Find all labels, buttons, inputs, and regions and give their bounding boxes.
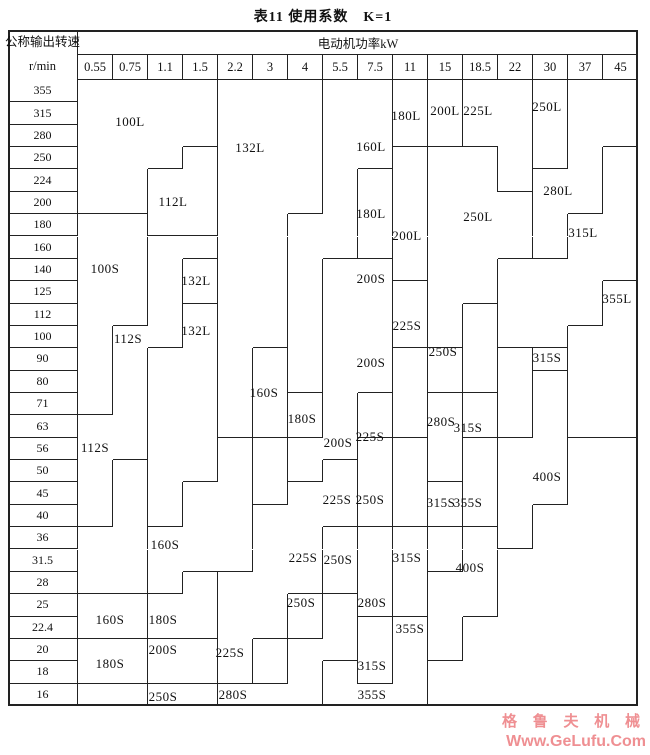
- speed-cell: 50: [8, 460, 78, 482]
- body-cell: [253, 214, 288, 236]
- body-cell: [463, 348, 498, 370]
- body-cell: [218, 527, 253, 549]
- body-cell: [533, 125, 568, 147]
- body-cell: [533, 438, 568, 460]
- body-cell: [393, 80, 428, 102]
- body-cell: [253, 594, 288, 616]
- body-cell: [393, 639, 428, 661]
- speed-cell: 80: [8, 371, 78, 393]
- body-cell: [498, 192, 533, 214]
- region-label: 315S: [533, 350, 562, 366]
- body-cell: [358, 617, 393, 639]
- body-cell: [393, 594, 428, 616]
- body-cell: [393, 169, 428, 191]
- power-cell: 45: [603, 55, 638, 80]
- body-cell: [323, 505, 358, 527]
- body-cell: [253, 438, 288, 460]
- speed-cell: 180: [8, 214, 78, 236]
- body-cell: [498, 80, 533, 102]
- body-cell: [463, 326, 498, 348]
- body-cell: [428, 393, 463, 415]
- region-label: 250S: [287, 595, 316, 611]
- body-cell: [183, 147, 218, 169]
- body-cell: [183, 438, 218, 460]
- body-cell: [358, 572, 393, 594]
- body-cell: [183, 661, 218, 683]
- power-cell: 15: [428, 55, 463, 80]
- body-cell: [603, 259, 638, 281]
- body-cell: [148, 281, 183, 303]
- body-cell: [428, 460, 463, 482]
- power-header: 电动机功率kW: [78, 30, 638, 55]
- body-cell: [393, 415, 428, 437]
- speed-cell: 100: [8, 326, 78, 348]
- body-cell: [183, 125, 218, 147]
- body-cell: [393, 661, 428, 683]
- body-cell: [253, 259, 288, 281]
- body-cell: [183, 617, 218, 639]
- body-cell: [428, 617, 463, 639]
- body-cell: [183, 237, 218, 259]
- body-cell: [393, 147, 428, 169]
- power-cell: 1.5: [183, 55, 218, 80]
- speed-cell: 18: [8, 661, 78, 683]
- region-label: 132L: [235, 140, 264, 156]
- body-cell: [533, 393, 568, 415]
- body-cell: [568, 281, 603, 303]
- region-label: 315S: [393, 550, 422, 566]
- speed-cell: 200: [8, 192, 78, 214]
- speed-cell: 22.4: [8, 617, 78, 639]
- body-cell: [323, 639, 358, 661]
- speed-cell: 112: [8, 304, 78, 326]
- region-label: 315S: [358, 658, 387, 674]
- body-cell: [393, 371, 428, 393]
- body-cell: [533, 147, 568, 169]
- region-label: 160S: [151, 537, 180, 553]
- power-cell: 0.55: [78, 55, 113, 80]
- body-cell: [183, 192, 218, 214]
- power-cell: 3: [253, 55, 288, 80]
- region-label: 112S: [81, 440, 109, 456]
- body-cell: [78, 326, 113, 348]
- body-cell: [113, 348, 148, 370]
- body-cell: [393, 572, 428, 594]
- region-label: 250S: [324, 552, 353, 568]
- region-label: 160S: [250, 385, 279, 401]
- region-label: 315S: [454, 420, 483, 436]
- body-cell: [393, 527, 428, 549]
- body-cell: [533, 371, 568, 393]
- body-cell: [603, 125, 638, 147]
- body-cell: [393, 125, 428, 147]
- speed-cell: 45: [8, 482, 78, 504]
- body-cell: [568, 304, 603, 326]
- speed-cell: 224: [8, 169, 78, 191]
- region-label: 400S: [456, 560, 485, 576]
- body-cell: [148, 147, 183, 169]
- body-cell: [183, 639, 218, 661]
- body-cell: [358, 460, 393, 482]
- region-label: 112L: [159, 194, 188, 210]
- body-cell: [323, 192, 358, 214]
- body-cell: [428, 438, 463, 460]
- watermark-cn: 格 鲁 夫 机 械: [502, 713, 646, 732]
- body-cell: [113, 393, 148, 415]
- power-cell: 18.5: [463, 55, 498, 80]
- body-cell: [498, 125, 533, 147]
- body-cell: [288, 125, 323, 147]
- body-cell: [113, 169, 148, 191]
- region-label: 180L: [391, 108, 420, 124]
- body-cell: [218, 482, 253, 504]
- power-cell: 0.75: [113, 55, 148, 80]
- region-label: 280S: [427, 414, 456, 430]
- region-label: 100S: [91, 261, 120, 277]
- body-cell: [568, 192, 603, 214]
- body-cell: [393, 393, 428, 415]
- body-cell: [428, 304, 463, 326]
- body-cell: [113, 281, 148, 303]
- body-cell: [393, 505, 428, 527]
- speed-cell: 36: [8, 527, 78, 549]
- body-cell: [288, 80, 323, 102]
- body-cell: [323, 169, 358, 191]
- body-cell: [183, 393, 218, 415]
- body-cell: [393, 438, 428, 460]
- region-label: 225S: [356, 429, 385, 445]
- body-cell: [148, 326, 183, 348]
- body-cell: [498, 102, 533, 124]
- region-label: 315S: [427, 495, 456, 511]
- body-cell: [463, 125, 498, 147]
- body-cell: [113, 415, 148, 437]
- body-cell: [498, 505, 533, 527]
- body-cell: [253, 482, 288, 504]
- body-cell: [358, 527, 393, 549]
- body-cell: [183, 348, 218, 370]
- body-cell: [463, 147, 498, 169]
- page-title: 表11 使用系数 K=1: [0, 6, 646, 26]
- body-cell: [498, 214, 533, 236]
- body-cell: [498, 147, 533, 169]
- body-cell: [568, 415, 603, 437]
- speed-cell: 63: [8, 415, 78, 437]
- body-cell: [253, 237, 288, 259]
- region-label: 355S: [454, 495, 483, 511]
- region-label: 180S: [149, 612, 178, 628]
- region-label: 160S: [96, 612, 125, 628]
- body-cell: [288, 371, 323, 393]
- body-cell: [323, 460, 358, 482]
- body-cell: [358, 304, 393, 326]
- body-cell: [358, 371, 393, 393]
- speed-cell: 140: [8, 259, 78, 281]
- region-label: 225S: [216, 645, 245, 661]
- body-cell: [148, 482, 183, 504]
- speed-cell: 160: [8, 237, 78, 259]
- body-cell: [393, 482, 428, 504]
- region-label: 355L: [602, 291, 631, 307]
- speed-cell: 31.5: [8, 550, 78, 572]
- body-cell: [498, 237, 533, 259]
- body-cell: [113, 572, 148, 594]
- region-label: 180S: [288, 411, 317, 427]
- body-cell: [253, 460, 288, 482]
- region-label: 225S: [289, 550, 318, 566]
- document-page: 表11 使用系数 K=1 公称输出转速r/min电动机功率kW0.550.751…: [0, 0, 650, 755]
- body-cell: [113, 527, 148, 549]
- body-cell: [113, 438, 148, 460]
- body-cell: [323, 661, 358, 683]
- region-label: 250S: [149, 689, 178, 705]
- body-cell: [218, 661, 253, 683]
- body-cell: [568, 169, 603, 191]
- corner-unit-label: r/min: [29, 55, 56, 79]
- body-cell: [358, 80, 393, 102]
- region-label: 355S: [396, 621, 425, 637]
- body-cell: [113, 214, 148, 236]
- region-label: 200S: [149, 642, 178, 658]
- body-cell: [568, 147, 603, 169]
- body-cell: [113, 550, 148, 572]
- body-cell: [148, 505, 183, 527]
- body-cell: [463, 169, 498, 191]
- body-cell: [288, 259, 323, 281]
- power-cell: 2.2: [218, 55, 253, 80]
- body-cell: [218, 393, 253, 415]
- body-cell: [183, 371, 218, 393]
- speed-cell: 16: [8, 684, 78, 706]
- body-cell: [253, 415, 288, 437]
- body-cell: [78, 348, 113, 370]
- body-cell: [533, 237, 568, 259]
- watermark: 格 鲁 夫 机 械 Www.GeLufu.Com: [502, 713, 646, 752]
- body-cell: [253, 639, 288, 661]
- body-cell: [323, 393, 358, 415]
- region-label: 280S: [219, 687, 248, 703]
- body-cell: [393, 192, 428, 214]
- body-cell: [183, 169, 218, 191]
- body-cell: [78, 371, 113, 393]
- body-cell: [218, 348, 253, 370]
- body-cell: [78, 460, 113, 482]
- body-cell: [253, 617, 288, 639]
- body-cell: [183, 214, 218, 236]
- body-cell: [428, 527, 463, 549]
- power-cell: 22: [498, 55, 533, 80]
- speed-cell: 56: [8, 438, 78, 460]
- body-cell: [498, 371, 533, 393]
- body-cell: [218, 438, 253, 460]
- body-cell: [113, 505, 148, 527]
- body-cell: [463, 304, 498, 326]
- body-cell: [428, 125, 463, 147]
- body-cell: [323, 527, 358, 549]
- body-cell: [323, 617, 358, 639]
- body-cell: [218, 460, 253, 482]
- speed-cell: 20: [8, 639, 78, 661]
- body-cell: [428, 80, 463, 102]
- body-cell: [78, 192, 113, 214]
- region-label: 200S: [324, 435, 353, 451]
- body-cell: [288, 460, 323, 482]
- corner-cell: 公称输出转速r/min: [8, 30, 78, 80]
- speed-cell: 28: [8, 572, 78, 594]
- body-cell: [78, 572, 113, 594]
- body-cell: [498, 393, 533, 415]
- watermark-url: Www.GeLufu.Com: [502, 732, 646, 752]
- body-cell: [393, 460, 428, 482]
- body-cell: [533, 326, 568, 348]
- body-cell: [428, 371, 463, 393]
- body-cell: [218, 415, 253, 437]
- region-label: 132L: [181, 273, 210, 289]
- region-label: 280S: [358, 595, 387, 611]
- body-cell: [533, 415, 568, 437]
- body-cell: [113, 482, 148, 504]
- body-cell: [183, 684, 218, 706]
- region-label: 225S: [323, 492, 352, 508]
- body-cell: [183, 460, 218, 482]
- body-cell: [393, 684, 428, 706]
- body-cell: [148, 304, 183, 326]
- body-cell: [288, 684, 323, 706]
- region-label: 250L: [532, 99, 561, 115]
- speed-cell: 280: [8, 125, 78, 147]
- body-cell: [288, 527, 323, 549]
- body-cell: [358, 393, 393, 415]
- speed-cell: 40: [8, 505, 78, 527]
- region-label: 315L: [568, 225, 597, 241]
- body-cell: [533, 482, 568, 504]
- region-label: 250L: [463, 209, 492, 225]
- body-cell: [148, 214, 183, 236]
- body-cell: [393, 259, 428, 281]
- body-cell: [393, 281, 428, 303]
- body-cell: [288, 192, 323, 214]
- body-cell: [428, 639, 463, 661]
- region-label: 132L: [181, 323, 210, 339]
- body-cell: [148, 259, 183, 281]
- body-cell: [218, 505, 253, 527]
- body-cell: [288, 348, 323, 370]
- body-cell: [498, 169, 533, 191]
- body-cell: [463, 281, 498, 303]
- body-cell: [393, 348, 428, 370]
- body-cell: [183, 102, 218, 124]
- region-label: 250S: [429, 344, 458, 360]
- body-cell: [463, 393, 498, 415]
- body-cell: [323, 237, 358, 259]
- body-cell: [498, 527, 533, 549]
- body-cell: [253, 661, 288, 683]
- body-cell: [253, 281, 288, 303]
- body-cell: [498, 326, 533, 348]
- region-label: 225S: [393, 318, 422, 334]
- body-cell: [288, 304, 323, 326]
- speed-cell: 315: [8, 102, 78, 124]
- body-cell: [148, 661, 183, 683]
- body-cell: [113, 371, 148, 393]
- body-cell: [183, 80, 218, 102]
- region-label: 355S: [358, 687, 387, 703]
- body-cell: [463, 594, 498, 616]
- body-cell: [323, 594, 358, 616]
- body-cell: [358, 102, 393, 124]
- body-cell: [218, 371, 253, 393]
- body-cell: [253, 304, 288, 326]
- corner-speed-label: 公称输出转速: [5, 31, 80, 55]
- region-label: 160L: [356, 139, 385, 155]
- body-cell: [113, 237, 148, 259]
- body-cell: [358, 326, 393, 348]
- body-cell: [183, 550, 218, 572]
- speed-cell: 355: [8, 80, 78, 102]
- body-cell: [288, 326, 323, 348]
- body-cell: [533, 214, 568, 236]
- body-cell: [288, 281, 323, 303]
- power-cell: 4: [288, 55, 323, 80]
- body-cell: [498, 348, 533, 370]
- body-cell: [288, 661, 323, 683]
- body-cell: [288, 169, 323, 191]
- body-cell: [463, 371, 498, 393]
- speed-cell: 71: [8, 393, 78, 415]
- body-cell: [183, 572, 218, 594]
- body-cell: [113, 304, 148, 326]
- body-cell: [113, 460, 148, 482]
- body-cell: [183, 415, 218, 437]
- body-cell: [603, 415, 638, 437]
- body-cell: [498, 415, 533, 437]
- region-label: 250S: [356, 492, 385, 508]
- body-cell: [358, 237, 393, 259]
- body-cell: [323, 572, 358, 594]
- speed-cell: 250: [8, 147, 78, 169]
- region-label: 200S: [357, 355, 386, 371]
- body-cell: [78, 505, 113, 527]
- body-cell: [148, 572, 183, 594]
- body-cell: [253, 348, 288, 370]
- power-cell: 1.1: [148, 55, 183, 80]
- power-cell: 7.5: [358, 55, 393, 80]
- body-cell: [288, 147, 323, 169]
- body-cell: [358, 505, 393, 527]
- body-cell: [113, 684, 148, 706]
- region-label: 400S: [533, 469, 562, 485]
- body-cell: [463, 460, 498, 482]
- body-cell: [78, 393, 113, 415]
- region-label: 112S: [114, 331, 142, 347]
- region-label: 180L: [356, 206, 385, 222]
- body-cell: [463, 438, 498, 460]
- body-cell: [183, 594, 218, 616]
- region-label: 200L: [392, 228, 421, 244]
- body-cell: [253, 326, 288, 348]
- body-cell: [288, 572, 323, 594]
- power-cell: 11: [393, 55, 428, 80]
- region-label: 100L: [115, 114, 144, 130]
- region-label: 200S: [357, 271, 386, 287]
- body-cell: [78, 482, 113, 504]
- region-label: 180S: [96, 656, 125, 672]
- body-cell: [288, 617, 323, 639]
- body-cell: [463, 259, 498, 281]
- body-cell: [323, 214, 358, 236]
- body-cell: [358, 169, 393, 191]
- power-cell: 37: [568, 55, 603, 80]
